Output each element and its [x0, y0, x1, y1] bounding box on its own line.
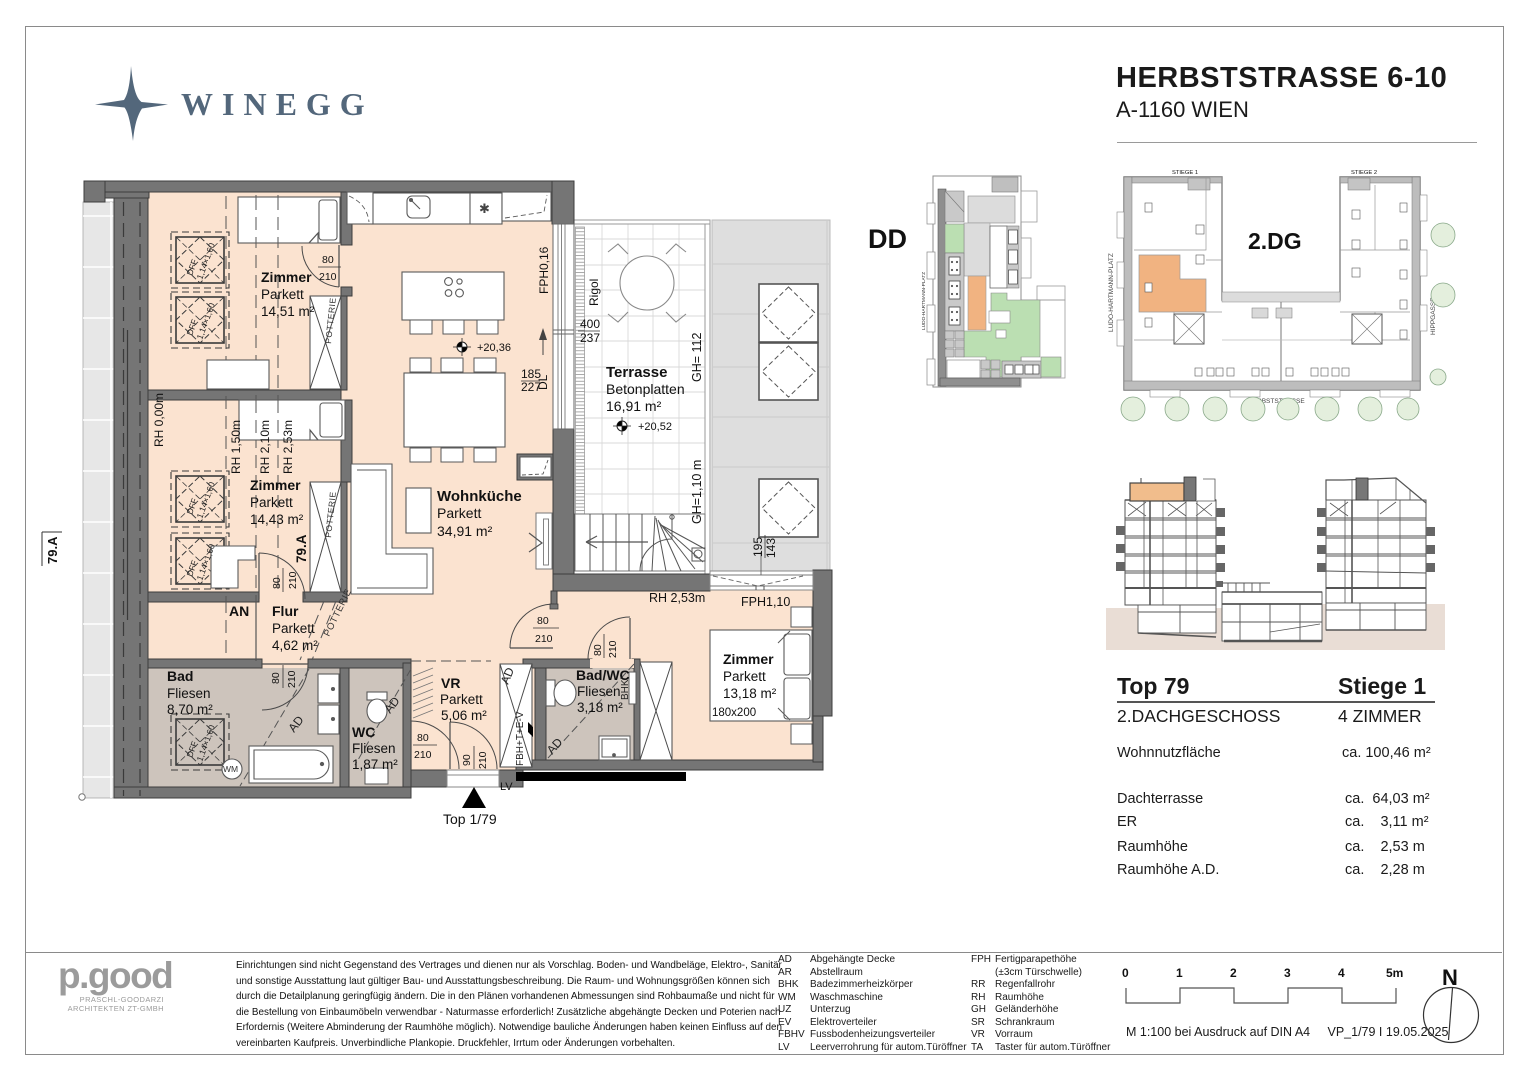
svg-text:80: 80 — [270, 672, 282, 684]
svg-text:Terrasse: Terrasse — [606, 364, 667, 381]
svg-text:Parkett: Parkett — [440, 692, 483, 707]
svg-text:210: 210 — [287, 571, 299, 589]
svg-text:1,87 m²: 1,87 m² — [352, 757, 398, 772]
svg-text:4: 4 — [1338, 966, 1345, 980]
svg-text:Zimmer: Zimmer — [250, 477, 301, 493]
svg-text:FPH1,10: FPH1,10 — [741, 595, 790, 609]
svg-text:237: 237 — [580, 331, 600, 345]
svg-text:210: 210 — [535, 633, 553, 645]
svg-text:Zimmer: Zimmer — [723, 651, 774, 667]
svg-text:LUDO-HARTMANN-PLATZ: LUDO-HARTMANN-PLATZ — [1108, 253, 1115, 332]
svg-text:80: 80 — [322, 254, 334, 266]
svg-text:8,70 m²: 8,70 m² — [167, 702, 213, 717]
svg-text:Fliesen: Fliesen — [167, 686, 211, 701]
svg-text:Betonplatten: Betonplatten — [606, 381, 685, 397]
svg-text:VR: VR — [441, 675, 460, 691]
svg-text:3,18 m²: 3,18 m² — [577, 700, 623, 715]
svg-text:Parkett: Parkett — [272, 621, 315, 636]
svg-text:80: 80 — [592, 644, 604, 656]
svg-text:Rigol: Rigol — [587, 279, 601, 306]
svg-text:+20,36: +20,36 — [477, 342, 511, 354]
svg-text:79.A: 79.A — [45, 536, 60, 564]
svg-text:14,43 m²: 14,43 m² — [250, 512, 304, 527]
svg-text:2.DG: 2.DG — [1248, 228, 1302, 254]
svg-text:210: 210 — [286, 670, 298, 688]
svg-text:2: 2 — [1230, 966, 1237, 980]
svg-text:RH 2,53m: RH 2,53m — [281, 420, 295, 474]
svg-text:400: 400 — [580, 317, 600, 331]
svg-text:N: N — [1442, 965, 1458, 990]
svg-text:90: 90 — [461, 754, 473, 766]
svg-text:5m: 5m — [1386, 966, 1403, 980]
svg-text:Parkett: Parkett — [723, 669, 766, 684]
svg-text:STIEGE 2: STIEGE 2 — [1351, 170, 1377, 176]
svg-text:4,62 m²: 4,62 m² — [272, 638, 318, 653]
svg-text:WC: WC — [352, 724, 375, 740]
svg-text:GH=1,10 m: GH=1,10 m — [690, 460, 704, 524]
svg-text:Flur: Flur — [272, 603, 299, 619]
svg-text:WM: WM — [223, 764, 238, 774]
svg-text:0: 0 — [1122, 966, 1129, 980]
svg-text:LUDO-HARTMANN-PLATZ: LUDO-HARTMANN-PLATZ — [921, 272, 927, 330]
svg-text:Bad: Bad — [167, 668, 193, 684]
svg-text:14,51 m²: 14,51 m² — [261, 304, 315, 319]
svg-text:195: 195 — [751, 537, 765, 557]
svg-text:Wohnküche: Wohnküche — [437, 488, 522, 505]
svg-text:5,06 m²: 5,06 m² — [441, 708, 487, 723]
svg-text:DD: DD — [868, 224, 907, 254]
svg-text:RH 1,50m: RH 1,50m — [229, 420, 243, 474]
svg-text:16,91 m²: 16,91 m² — [606, 398, 662, 414]
svg-text:RH 0,00m: RH 0,00m — [152, 393, 166, 447]
svg-text:Parkett: Parkett — [250, 495, 293, 510]
svg-text:Parkett: Parkett — [437, 505, 481, 521]
svg-text:FBH+T+E-V: FBH+T+E-V — [515, 711, 526, 766]
svg-text:LV: LV — [500, 781, 513, 793]
svg-text:GH= 112: GH= 112 — [690, 333, 704, 382]
svg-text:210: 210 — [319, 271, 337, 283]
svg-text:DL: DL — [536, 374, 550, 390]
svg-text:34,91 m²: 34,91 m² — [437, 523, 493, 539]
svg-text:80: 80 — [537, 615, 549, 627]
svg-text:RH 2,10m: RH 2,10m — [258, 420, 272, 474]
svg-text:Top 1/79: Top 1/79 — [443, 811, 497, 827]
svg-text:+20,52: +20,52 — [638, 421, 672, 433]
svg-text:210: 210 — [414, 749, 432, 761]
svg-text:✱: ✱ — [479, 201, 490, 216]
svg-text:180x200: 180x200 — [712, 707, 756, 719]
svg-text:80: 80 — [417, 732, 429, 744]
svg-text:Fliesen: Fliesen — [577, 684, 621, 699]
svg-text:RH 2,53m: RH 2,53m — [649, 591, 705, 605]
svg-text:FPH0,16: FPH0,16 — [537, 246, 551, 294]
svg-text:BHK: BHK — [620, 679, 631, 700]
svg-text:1: 1 — [1176, 966, 1183, 980]
svg-text:3: 3 — [1284, 966, 1291, 980]
svg-text:Fliesen: Fliesen — [352, 741, 396, 756]
svg-text:STIEGE 1: STIEGE 1 — [1172, 170, 1198, 176]
svg-text:79.A: 79.A — [294, 534, 309, 563]
svg-text:Zimmer: Zimmer — [261, 269, 312, 285]
svg-text:210: 210 — [477, 751, 489, 769]
svg-text:13,18 m²: 13,18 m² — [723, 686, 777, 701]
svg-text:Parkett: Parkett — [261, 287, 304, 302]
svg-text:AN: AN — [229, 603, 249, 619]
svg-text:80: 80 — [271, 577, 283, 589]
svg-text:210: 210 — [607, 640, 619, 658]
svg-text:143: 143 — [764, 538, 778, 558]
